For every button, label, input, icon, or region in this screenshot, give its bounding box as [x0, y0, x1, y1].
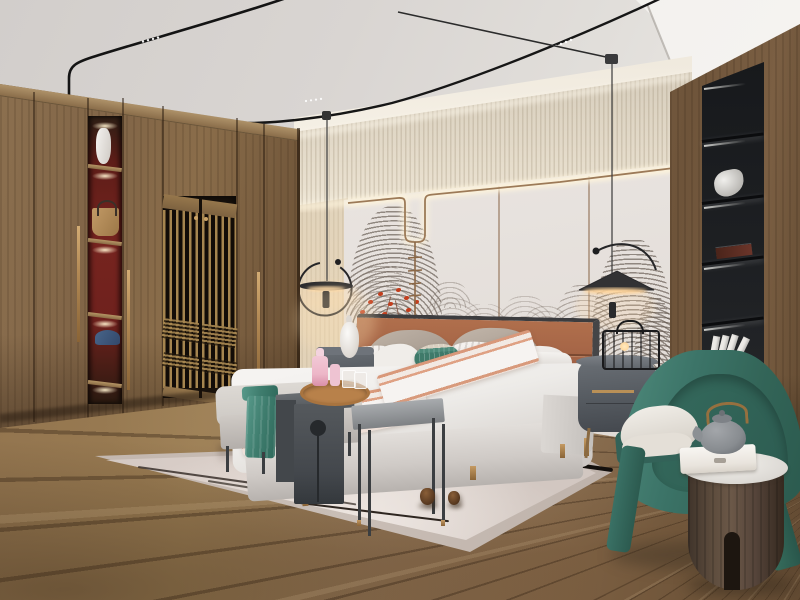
teapot	[700, 420, 746, 454]
pendant-stem	[609, 302, 616, 318]
niche-downlight	[92, 320, 118, 328]
track-led-dots	[305, 39, 572, 102]
pink-decanter	[312, 356, 328, 386]
pink-bottle	[330, 364, 340, 386]
wardrobe-side-edge	[297, 128, 300, 396]
wardrobe-handle	[127, 270, 130, 390]
lattice-divider	[199, 198, 202, 398]
bench-leg	[348, 432, 351, 456]
ceramic-table-lamp	[340, 322, 359, 358]
table-slit	[317, 432, 319, 502]
wardrobe-seam	[33, 92, 35, 422]
bed-leg	[470, 466, 476, 480]
track-light-line	[69, 0, 292, 99]
track-light-line	[240, 0, 670, 141]
niche-downlight	[92, 386, 118, 394]
waterfall-table-front	[294, 404, 344, 504]
bedroom-photo	[0, 0, 800, 600]
lattice-knob	[194, 216, 198, 220]
stool-foot	[441, 520, 445, 526]
pendant-arm-ball	[593, 248, 600, 255]
pinecone	[420, 488, 435, 505]
bench-leg	[226, 446, 229, 472]
bed-leg	[560, 444, 565, 458]
stool-leg	[442, 424, 445, 524]
bench-leg	[262, 452, 265, 474]
pendant-arm	[597, 244, 656, 270]
blue-cap	[95, 330, 120, 345]
track-light-line	[398, 12, 606, 57]
box-clasp	[714, 458, 726, 463]
wardrobe-seam	[263, 124, 265, 400]
teapot-knob	[719, 410, 725, 416]
pendant-ring-ball	[335, 259, 341, 265]
glass	[354, 372, 367, 389]
waterfall-table-side	[276, 400, 296, 482]
lamp-glow	[296, 286, 376, 356]
wardrobe-seam	[236, 118, 238, 402]
lantern-bulb	[620, 342, 629, 351]
white-vase	[96, 128, 111, 164]
pendant-mount	[605, 54, 618, 64]
stool-foot	[357, 520, 361, 526]
wardrobe-seam	[122, 98, 124, 418]
handbag-handle	[97, 200, 117, 216]
brass-tube	[348, 168, 674, 242]
wardrobe-handle	[77, 226, 80, 342]
pinecone	[448, 491, 460, 505]
tube-glow	[348, 168, 674, 242]
wire-lantern	[602, 330, 660, 370]
cove-glow	[296, 76, 690, 136]
drum-table-notch	[724, 532, 740, 590]
niche-downlight	[92, 172, 118, 180]
niche-downlight	[92, 246, 118, 254]
stool-leg	[368, 430, 371, 536]
stool-leg	[358, 424, 361, 524]
teal-runner	[245, 395, 277, 458]
lattice-knob	[204, 217, 208, 221]
nightstand-handle	[592, 390, 634, 393]
pendant-shade	[579, 271, 654, 290]
pendant-glow	[583, 288, 647, 294]
